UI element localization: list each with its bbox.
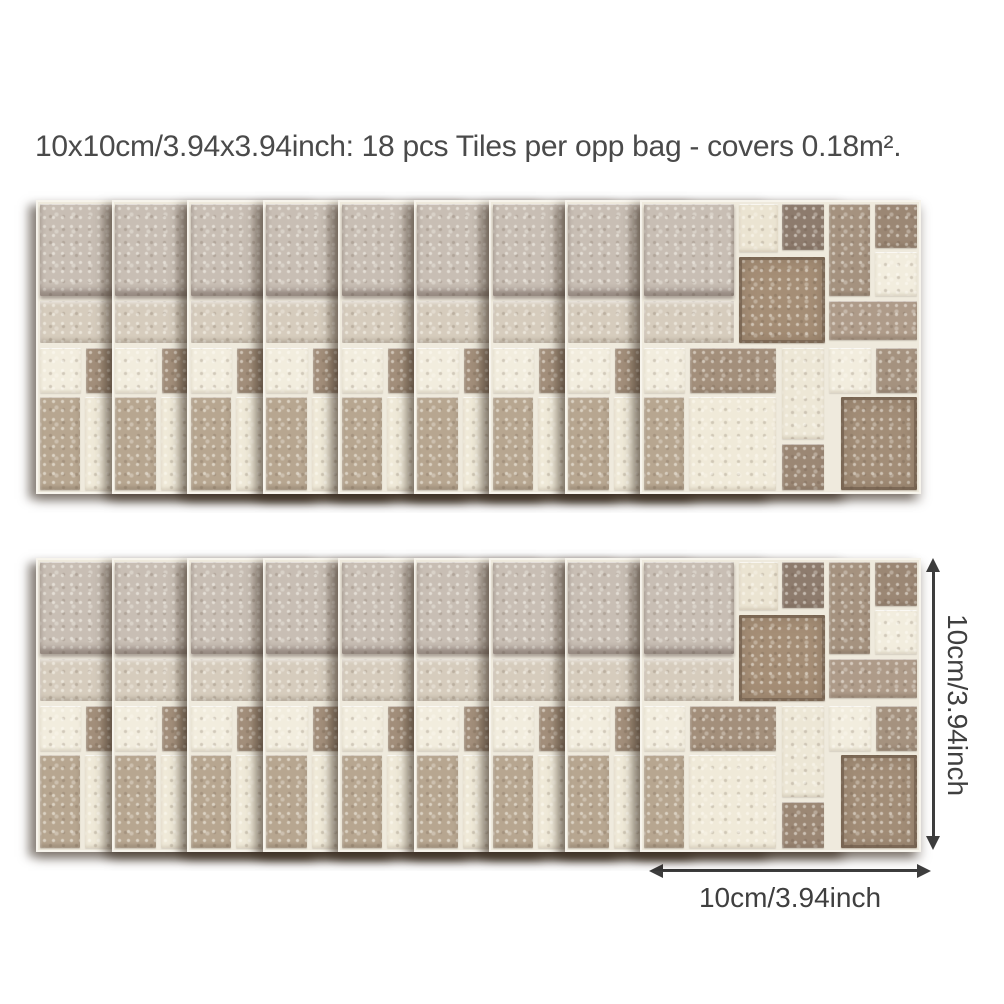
mosaic-tile	[782, 562, 824, 608]
mosaic-tile	[829, 204, 870, 296]
mosaic-tile	[417, 397, 457, 490]
product-image: 10x10cm/3.94x3.94inch: 18 pcs Tiles per …	[0, 0, 1004, 1004]
mosaic-tile	[644, 397, 684, 490]
mosaic-tile	[875, 610, 917, 654]
mosaic-tile	[782, 706, 824, 797]
tile-sheet-row-top	[36, 200, 926, 500]
mosaic-tile	[417, 706, 459, 751]
mosaic-tile	[568, 706, 610, 751]
mosaic-tile	[739, 257, 824, 343]
mosaic-tile	[266, 348, 308, 393]
mosaic-tile	[266, 397, 306, 490]
mosaic-tile	[191, 397, 231, 490]
mosaic-tile	[266, 755, 306, 848]
mosaic-tile	[782, 802, 824, 848]
tile-sheet-row-bottom	[36, 558, 926, 858]
product-title: 10x10cm/3.94x3.94inch: 18 pcs Tiles per …	[35, 130, 975, 164]
mosaic-tile	[342, 706, 384, 751]
mosaic-tile	[782, 204, 824, 250]
mosaic-tile	[40, 397, 80, 490]
vertical-arrow-line	[932, 571, 935, 838]
mosaic-tile	[829, 348, 871, 393]
mosaic-tile	[266, 706, 308, 751]
mosaic-tile	[115, 755, 155, 848]
mosaic-tile	[493, 348, 535, 393]
mosaic-tile	[875, 562, 917, 606]
mosaic-tile	[782, 348, 824, 439]
mosaic-tile	[644, 659, 734, 700]
mosaic-tile	[191, 706, 233, 751]
mosaic-tile	[829, 301, 917, 340]
mosaic-tile	[690, 348, 776, 393]
mosaic-tile	[644, 706, 686, 751]
mosaic-tile	[876, 348, 917, 393]
mosaic-tile	[875, 204, 917, 248]
mosaic-tile	[115, 348, 157, 393]
mosaic-tile	[689, 755, 776, 848]
mosaic-tile	[644, 348, 686, 393]
mosaic-tile	[739, 204, 778, 252]
mosaic-tile	[342, 348, 384, 393]
mosaic-tile	[782, 444, 824, 490]
mosaic-tile	[40, 755, 80, 848]
tile-sheet	[640, 558, 921, 852]
mosaic-tile	[739, 615, 824, 701]
arrowhead-up-icon	[926, 558, 940, 572]
mosaic-tile	[568, 348, 610, 393]
mosaic-tile	[568, 397, 608, 490]
mosaic-tile	[829, 659, 917, 698]
mosaic-tile	[568, 755, 608, 848]
mosaic-tile	[739, 562, 778, 610]
mosaic-tile	[875, 252, 917, 296]
tile-sheet	[640, 200, 921, 494]
mosaic-tile	[644, 755, 684, 848]
mosaic-tile	[841, 755, 917, 848]
mosaic-tile	[493, 755, 533, 848]
mosaic-tile	[644, 204, 734, 296]
mosaic-tile	[689, 397, 776, 490]
mosaic-tile	[493, 706, 535, 751]
mosaic-tile	[417, 755, 457, 848]
mosaic-tile	[690, 706, 776, 751]
mosaic-tile	[493, 397, 533, 490]
mosaic-tile	[191, 755, 231, 848]
mosaic-tile	[191, 348, 233, 393]
mosaic-tile	[644, 301, 734, 342]
horizontal-arrow-line	[661, 869, 919, 872]
arrowhead-down-icon	[926, 836, 940, 850]
height-dimension-label: 10cm/3.94inch	[941, 558, 973, 852]
mosaic-tile	[342, 397, 382, 490]
mosaic-tile	[417, 348, 459, 393]
mosaic-tile	[829, 562, 870, 654]
arrowhead-right-icon	[917, 864, 931, 878]
mosaic-tile	[115, 706, 157, 751]
mosaic-tile	[841, 397, 917, 490]
mosaic-tile	[40, 348, 82, 393]
mosaic-tile	[115, 397, 155, 490]
mosaic-tile	[40, 706, 82, 751]
width-dimension-label: 10cm/3.94inch	[650, 882, 930, 914]
mosaic-tile	[829, 706, 871, 751]
mosaic-tile	[342, 755, 382, 848]
mosaic-tile	[876, 706, 917, 751]
mosaic-tile	[644, 562, 734, 654]
